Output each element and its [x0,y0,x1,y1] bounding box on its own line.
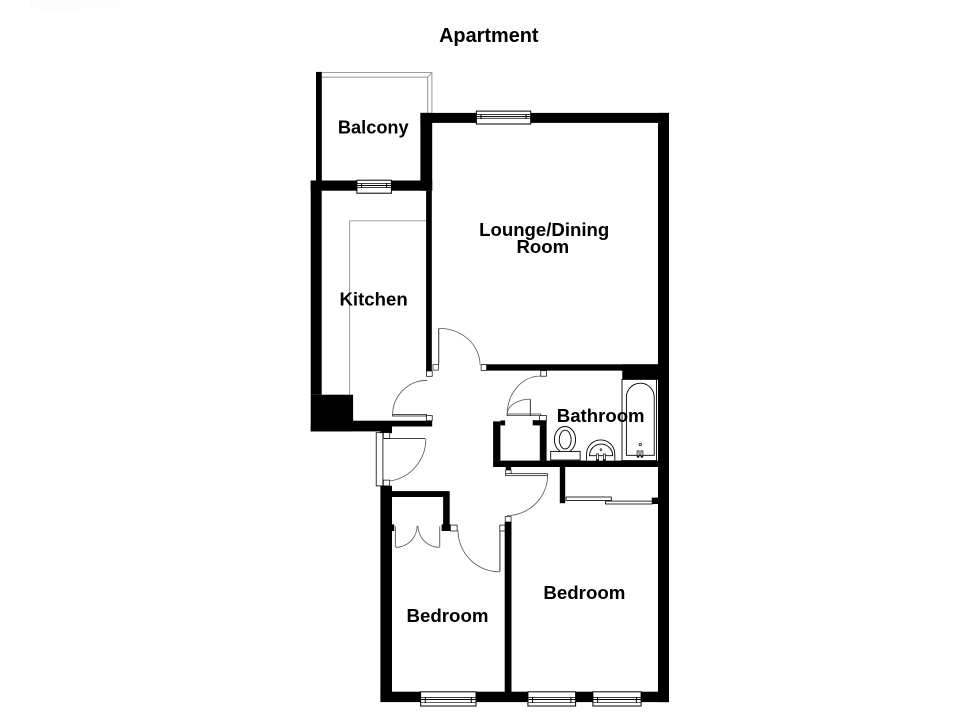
svg-text:Apartment: Apartment [439,25,539,47]
svg-text:Room: Room [516,236,569,257]
svg-text:Kitchen: Kitchen [340,289,408,310]
svg-text:Bedroom: Bedroom [406,605,488,626]
svg-text:Balcony: Balcony [338,118,410,138]
svg-text:Bathroom: Bathroom [557,405,645,426]
svg-text:Bedroom: Bedroom [543,582,625,603]
